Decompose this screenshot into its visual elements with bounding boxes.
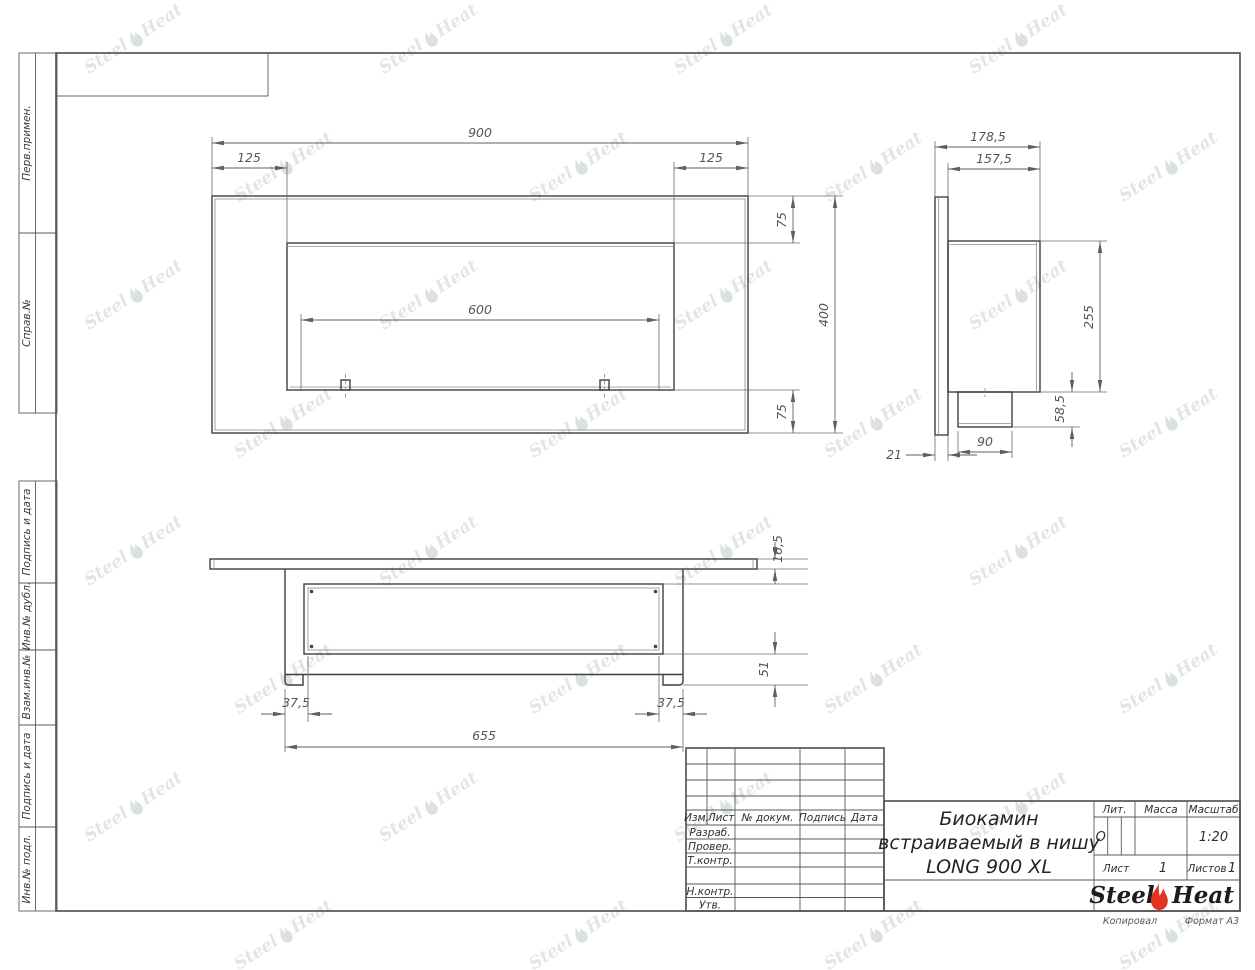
watermark: Steel Heat (81, 768, 187, 846)
sheet-label: Лист (1102, 863, 1130, 875)
watermark-steel-text: Steel (81, 547, 133, 590)
watermark-steel-text: Steel (81, 803, 133, 846)
dim-side-body-depth: 157,5 (976, 151, 1012, 166)
watermark: Steel Heat (671, 512, 777, 590)
title-row-nkontr: Н.контр. (687, 886, 734, 898)
left-margin-columns: Перв.примен. Справ.№ Подпись и дата Инв.… (19, 53, 57, 911)
logo-heat-text: Heat (1171, 882, 1234, 909)
margin-label-podpis-data-2: Подпись и дата (21, 733, 33, 820)
watermark-steel-text: Steel (526, 163, 578, 206)
watermark-heat-text: Heat (431, 512, 481, 554)
lit-value: О (1096, 830, 1106, 845)
watermark: Steel Heat (526, 128, 632, 206)
product-title-line-2: встраиваемый в нишу (878, 832, 1100, 854)
watermark-steel-text: Steel (1116, 419, 1168, 462)
watermark-steel-text: Steel (821, 419, 873, 462)
watermark-heat-text: Heat (1171, 640, 1221, 682)
watermark-heat-text: Heat (1021, 256, 1071, 298)
watermark-steel-text: Steel (966, 291, 1018, 334)
title-col-podpis: Подпись (799, 812, 846, 824)
title-row-prover: Провер. (688, 841, 732, 853)
side-flange (935, 197, 948, 435)
watermark: Steel Heat (81, 512, 187, 590)
watermark: Steel Heat (526, 640, 632, 718)
product-title-line-1: Биокамин (939, 808, 1038, 830)
watermark-heat-text: Heat (1021, 768, 1071, 810)
watermark: Steel Heat (821, 896, 927, 970)
drawing-page: Steel Heat Steel Heat Steel Heat Steel H… (0, 0, 1255, 970)
watermark-steel-text: Steel (526, 675, 578, 718)
watermark-steel-text: Steel (966, 547, 1018, 590)
watermark-heat-text: Heat (581, 896, 631, 938)
dim-bottom-left-inset: 37,5 (282, 695, 310, 710)
margin-label-vzam-inv: Взам.инв.№ (21, 655, 33, 720)
watermark-heat-text: Heat (876, 128, 926, 170)
watermark: Steel Heat (1116, 640, 1222, 718)
watermark-heat-text: Heat (286, 896, 336, 938)
watermark-steel-text: Steel (671, 35, 723, 78)
watermark-steel-text: Steel (671, 291, 723, 334)
dim-front-total-width: 900 (468, 125, 492, 140)
watermark-heat-text: Heat (136, 768, 186, 810)
watermark: Steel Heat (966, 256, 1072, 334)
watermark: Steel Heat (671, 256, 777, 334)
dim-front-left-offset: 125 (237, 150, 261, 165)
drawing-sheet: Steel Heat Steel Heat Steel Heat Steel H… (0, 0, 1255, 970)
dim-side-flange-thickness: 21 (886, 447, 902, 462)
watermark-heat-text: Heat (431, 768, 481, 810)
watermark: Steel Heat (966, 512, 1072, 590)
watermark-heat-text: Heat (876, 640, 926, 682)
bottom-view: 16,5 51 37,5 37,5 655 (210, 535, 808, 752)
lit-label: Лит. (1101, 804, 1126, 816)
title-col-data: Дата (850, 812, 878, 824)
watermark: Steel Heat (821, 128, 927, 206)
watermark-heat-text: Heat (1171, 128, 1221, 170)
watermark: Steel Heat (1116, 128, 1222, 206)
bottom-flange (210, 559, 757, 569)
watermark: Steel Heat (526, 896, 632, 970)
title-row-utv: Утв. (699, 900, 721, 912)
watermark-layer: Steel Heat Steel Heat Steel Heat Steel H… (81, 0, 1222, 970)
watermark-steel-text: Steel (231, 675, 283, 718)
watermark-steel-text: Steel (376, 803, 428, 846)
watermark-heat-text: Heat (1021, 0, 1071, 42)
dim-side-spout-depth: 90 (977, 434, 993, 449)
watermark-heat-text: Heat (581, 128, 631, 170)
watermark-steel-text: Steel (526, 931, 578, 970)
title-col-docnum: № докум. (741, 812, 794, 824)
dim-front-right-offset: 125 (699, 150, 723, 165)
watermark: Steel Heat (821, 384, 927, 462)
watermark-heat-text: Heat (581, 640, 631, 682)
side-spout (958, 392, 1012, 427)
sheet-value: 1 (1159, 861, 1167, 876)
watermark: Steel Heat (376, 768, 482, 846)
watermark-heat-text: Heat (136, 512, 186, 554)
dim-bottom-body-width: 655 (472, 728, 496, 743)
watermark: Steel Heat (81, 0, 187, 78)
watermark-steel-text: Steel (231, 163, 283, 206)
watermark-steel-text: Steel (231, 931, 283, 970)
dim-front-top-margin: 75 (774, 212, 789, 228)
margin-label-perv-primen: Перв.примен. (21, 105, 33, 180)
watermark-heat-text: Heat (726, 256, 776, 298)
watermark-heat-text: Heat (726, 768, 776, 810)
dim-bottom-right-inset: 37,5 (657, 695, 685, 710)
margin-label-podpis-data-1: Подпись и дата (21, 489, 33, 576)
watermark-steel-text: Steel (1116, 675, 1168, 718)
watermark-steel-text: Steel (1116, 931, 1168, 970)
watermark: Steel Heat (376, 0, 482, 78)
product-title-line-3: LONG 900 XL (926, 856, 1052, 878)
watermark-heat-text: Heat (876, 384, 926, 426)
dim-bottom-flange-thickness: 16,5 (770, 535, 785, 563)
company-logo: Steel Heat (1089, 882, 1234, 910)
footer-kopiroval: Копировал (1103, 916, 1157, 927)
side-view: 178,5 157,5 255 58,5 90 21 (886, 129, 1107, 462)
watermark-heat-text: Heat (726, 0, 776, 42)
watermark: Steel Heat (376, 512, 482, 590)
margin-label-inv-dubl: Инв.№ дубл. (21, 582, 33, 651)
watermark: Steel Heat (1116, 384, 1222, 462)
watermark: Steel Heat (231, 896, 337, 970)
scale-label: Масштаб (1189, 804, 1239, 816)
watermark-steel-text: Steel (1116, 163, 1168, 206)
logo-steel-text: Steel (1089, 882, 1155, 909)
mass-label: Масса (1144, 804, 1177, 816)
watermark: Steel Heat (966, 0, 1072, 78)
title-row-razrab: Разраб. (689, 827, 730, 839)
watermark-steel-text: Steel (81, 291, 133, 334)
dim-side-body-height: 255 (1081, 305, 1096, 329)
watermark: Steel Heat (671, 0, 777, 78)
bottom-burner-frame (304, 584, 663, 654)
sheets-label: Листов (1186, 863, 1226, 875)
watermark-heat-text: Heat (1171, 384, 1221, 426)
watermark: Steel Heat (231, 128, 337, 206)
watermark-heat-text: Heat (431, 256, 481, 298)
watermark-heat-text: Heat (726, 512, 776, 554)
dim-front-total-height: 400 (816, 303, 831, 327)
watermark-heat-text: Heat (136, 0, 186, 42)
watermark-steel-text: Steel (231, 419, 283, 462)
title-col-izm: Изм. (684, 812, 709, 824)
watermark-steel-text: Steel (526, 419, 578, 462)
watermark: Steel Heat (376, 256, 482, 334)
dim-front-bottom-margin: 75 (774, 404, 789, 420)
watermark-steel-text: Steel (376, 35, 428, 78)
title-col-list: Лист (707, 812, 735, 824)
watermark-steel-text: Steel (966, 35, 1018, 78)
scale-value: 1:20 (1199, 830, 1228, 845)
dim-side-spout-height: 58,5 (1052, 395, 1067, 423)
watermark-heat-text: Heat (1021, 512, 1071, 554)
watermark-heat-text: Heat (136, 256, 186, 298)
dim-front-burner-width: 600 (468, 302, 492, 317)
watermark-heat-text: Heat (431, 0, 481, 42)
watermark: Steel Heat (526, 384, 632, 462)
watermark-steel-text: Steel (821, 931, 873, 970)
watermark: Steel Heat (231, 384, 337, 462)
watermark-steel-text: Steel (821, 675, 873, 718)
watermark-steel-text: Steel (821, 163, 873, 206)
margin-label-sprav-no: Справ.№ (21, 299, 33, 347)
margin-label-inv-podl: Инв.№ подл. (21, 834, 33, 903)
dim-side-total-depth: 178,5 (970, 129, 1006, 144)
watermark-steel-text: Steel (81, 35, 133, 78)
watermark: Steel Heat (81, 256, 187, 334)
watermark: Steel Heat (821, 640, 927, 718)
footer-format: Формат А3 (1185, 916, 1239, 927)
title-row-tkontr: Т.контр. (687, 855, 733, 867)
front-view: 900 125 125 75 400 600 75 (212, 125, 843, 433)
watermark-steel-text: Steel (376, 291, 428, 334)
sheets-value: 1 (1228, 861, 1236, 876)
watermark-heat-text: Heat (286, 128, 336, 170)
dim-bottom-body-height: 51 (756, 661, 771, 677)
